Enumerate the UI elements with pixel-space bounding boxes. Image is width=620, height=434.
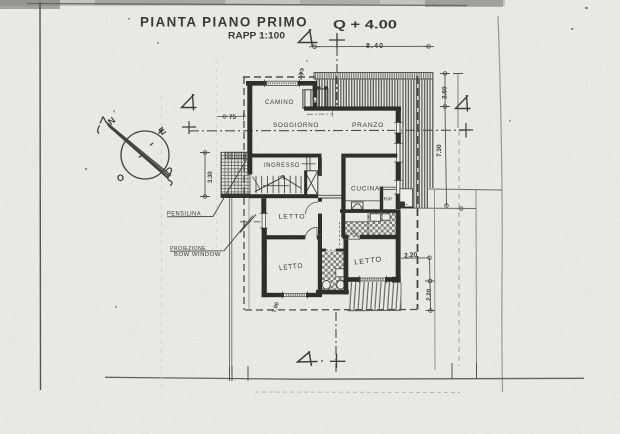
svg-text:2.20: 2.20 <box>404 252 418 260</box>
svg-text:8.40: 8.40 <box>366 43 383 50</box>
svg-text:7.30: 7.30 <box>436 144 443 157</box>
svg-text:2.50: 2.50 <box>442 86 449 99</box>
svg-text:PRANZO: PRANZO <box>352 122 384 129</box>
svg-text:2.20: 2.20 <box>426 288 433 301</box>
svg-text:CAMINO: CAMINO <box>265 99 294 106</box>
svg-text:SOGGIORNO: SOGGIORNO <box>273 122 319 129</box>
svg-text:Q + 4.00: Q + 4.00 <box>333 20 397 32</box>
svg-text:INGRESSO: INGRESSO <box>264 162 300 169</box>
svg-text:75: 75 <box>229 114 236 121</box>
svg-text:CUCINA: CUCINA <box>351 186 380 193</box>
svg-text:BOW WINDOW: BOW WINDOW <box>174 252 221 258</box>
svg-text:RIP: RIP <box>384 197 393 203</box>
svg-text:RAPP 1:100: RAPP 1:100 <box>228 31 285 41</box>
svg-text:LETTO: LETTO <box>279 214 306 221</box>
svg-text:PIANTA PIANO PRIMO: PIANTA PIANO PRIMO <box>140 14 308 30</box>
svg-text:3.30: 3.30 <box>208 171 214 183</box>
svg-text:O: O <box>117 173 124 183</box>
